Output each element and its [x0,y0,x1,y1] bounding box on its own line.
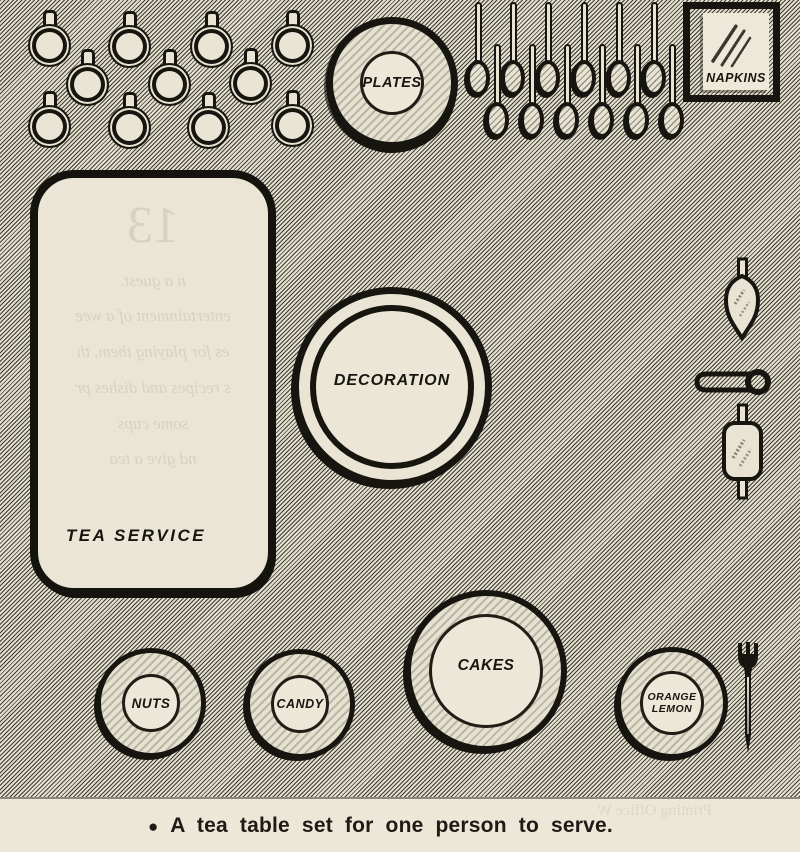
nuts-dish: NUTS [96,648,206,758]
lemon-label: LEMON [652,703,692,715]
tongs-ring-icon [690,366,778,398]
spoon-handle [545,2,552,66]
spoon-bowl [485,102,509,138]
cup-body [148,63,191,106]
spoon-handle [581,2,588,66]
citrus-dish: ORANGE LEMON [616,647,728,759]
tea-service-label: TEA SERVICE [56,526,216,546]
cup-body [108,25,151,68]
teaspoon-icon [554,44,580,142]
teacup-icon [229,48,272,105]
tea-table-illustration: PLATES NAPKINS [0,0,800,852]
fork-icon [734,641,762,755]
spoon-handle [599,44,606,108]
teacup-icon [187,92,230,149]
cup-body [28,105,71,148]
spoon-bowl [625,102,649,138]
teacup-icon [190,11,233,68]
tea-service-tray: 13 n a guest. entertainment of a wee es … [30,170,276,596]
cup-body [190,25,233,68]
cup-body [229,62,272,105]
plates-stack: PLATES [326,17,458,149]
spoon-handle [651,2,658,66]
citrus-label-disc: ORANGE LEMON [640,671,704,735]
cup-body [108,106,151,149]
teaspoon-icon [589,44,615,142]
napkin-fold-lines-icon [708,19,756,71]
spoon-handle [494,44,501,108]
decoration-label: DECORATION [334,372,450,390]
teaspoon-icon [659,44,685,142]
cup-body [187,106,230,149]
nuts-label-disc: NUTS [122,674,180,732]
cakes-label: CAKES [458,657,515,675]
napkins-label: NAPKINS [703,71,769,85]
spoon-handle [529,44,536,108]
caption-text: A tea table set for one person to serve. [170,814,613,838]
spoon-handle [616,2,623,66]
spoon-handle [669,44,676,108]
teaspoon-icon [519,44,545,142]
spoon-bowl [555,102,579,138]
spoon-bowl [590,102,614,138]
spoon-bowl [660,102,684,138]
napkin: NAPKINS [703,13,769,90]
teaspoon-icon [624,44,650,142]
decoration-centerpiece: DECORATION [292,287,492,487]
cup-body [66,63,109,106]
teacup-icon [28,10,71,67]
spoon-handle [634,44,641,108]
plates-label-disc: PLATES [360,51,424,115]
ghost-print-through: Printing Office W [597,802,712,820]
spoon-bowl [520,102,544,138]
cakes-plate: CAKES [405,590,567,752]
teaspoon-icon [484,44,510,142]
ghost-print-through: 13 n a guest. entertainment of a wee es … [56,190,250,572]
cup-body [271,24,314,67]
decoration-inner-ring: DECORATION [310,305,474,469]
teacup-icon [271,90,314,147]
orange-label: ORANGE [647,691,696,703]
double-handled-utensil-icon [720,402,764,502]
caption: ● A tea table set for one person to serv… [148,814,613,838]
teacup-icon [148,49,191,106]
plates-label: PLATES [362,75,421,91]
caption-strip: Printing Office W ● A tea table set for … [0,797,800,852]
cakes-label-disc: CAKES [429,614,543,728]
teacup-icon [28,91,71,148]
table-surface: PLATES NAPKINS [0,0,800,797]
cup-body [271,104,314,147]
spoon-handle [510,2,517,66]
teacup-icon [66,49,109,106]
cup-body [28,24,71,67]
spoon-handle [475,2,482,66]
candy-label: CANDY [277,697,324,711]
candy-dish: CANDY [245,649,355,759]
candy-label-disc: CANDY [271,675,329,733]
napkins-box: NAPKINS [683,2,780,102]
teacup-icon [108,92,151,149]
caption-bullet-icon: ● [148,818,158,835]
leaf-shaped-utensil-icon [722,256,762,354]
spoon-handle [564,44,571,108]
nuts-label: NUTS [132,696,171,711]
teacup-icon [271,10,314,67]
teacup-icon [108,11,151,68]
